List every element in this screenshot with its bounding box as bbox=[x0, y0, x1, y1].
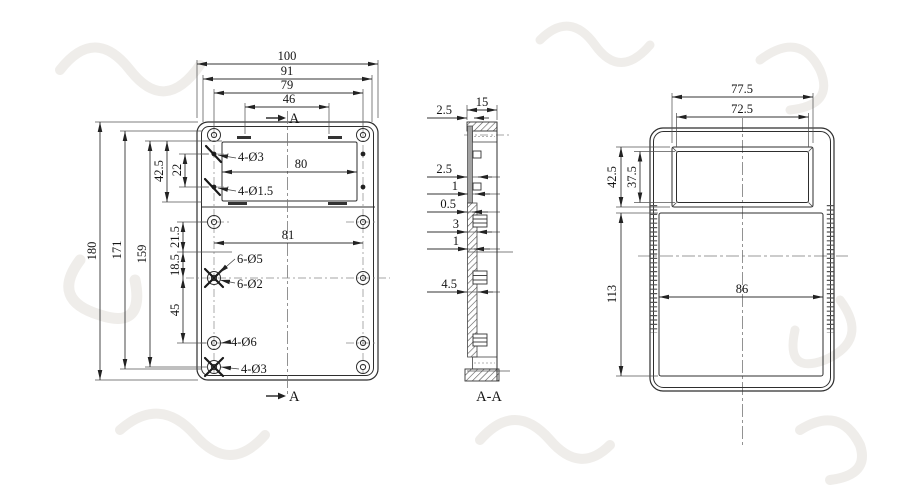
dim-86: 86 bbox=[736, 282, 749, 296]
dim-4-5: 4.5 bbox=[441, 277, 457, 291]
callout-mid-small-holes: 6-Ø2 bbox=[237, 277, 263, 291]
dim-0-5: 0.5 bbox=[440, 197, 456, 211]
section-letter-bottom: A bbox=[289, 389, 300, 405]
front-small-holes bbox=[212, 152, 366, 190]
dim-91: 91 bbox=[281, 64, 294, 78]
dim-37-5: 37.5 bbox=[625, 166, 639, 188]
dim-81: 81 bbox=[282, 228, 295, 242]
dim-2-5: 2.5 bbox=[436, 162, 452, 176]
dim-22: 22 bbox=[170, 164, 184, 177]
section-arrow-icon bbox=[278, 393, 286, 400]
section-bottom-recess bbox=[473, 357, 498, 369]
dim-3: 3 bbox=[453, 217, 459, 231]
callout-top-small-holes: 4-Ø1.5 bbox=[238, 184, 273, 198]
dim-80: 80 bbox=[295, 157, 308, 171]
dim-2-5-top: 2.5 bbox=[436, 103, 452, 117]
dim-18-5: 18.5 bbox=[168, 254, 182, 276]
dim-159: 159 bbox=[135, 245, 149, 264]
dim-1-lower: 1 bbox=[453, 234, 459, 248]
dim-21-5: 21.5 bbox=[168, 226, 182, 248]
dim-180: 180 bbox=[85, 242, 99, 261]
dim-100: 100 bbox=[278, 49, 297, 63]
callout-top-holes: 4-Ø3 bbox=[238, 150, 264, 164]
dim-42-5-side: 42.5 bbox=[605, 166, 619, 188]
dim-77-5: 77.5 bbox=[731, 82, 753, 96]
front-callouts: 4-Ø3 4-Ø1.5 6-Ø5 6-Ø2 4-Ø6 4-Ø3 bbox=[218, 150, 273, 376]
section-letter-top: A bbox=[289, 111, 300, 127]
dim-113: 113 bbox=[605, 285, 619, 303]
callout-bottom-corner-holes: 4-Ø3 bbox=[241, 362, 267, 376]
dim-46: 46 bbox=[283, 92, 296, 106]
side-outer-outline bbox=[650, 128, 834, 391]
dim-1-upper: 1 bbox=[452, 179, 458, 193]
dim-171: 171 bbox=[110, 241, 124, 260]
callout-bottom-holes: 4-Ø6 bbox=[231, 335, 257, 349]
section-wall-upper bbox=[468, 126, 473, 203]
section-arrow-icon bbox=[278, 115, 286, 122]
section-top-recess bbox=[473, 131, 498, 142]
dim-45: 45 bbox=[168, 304, 182, 317]
dim-15: 15 bbox=[476, 95, 489, 109]
section-bottom-cap bbox=[465, 369, 499, 381]
section-marker-bottom: A bbox=[266, 389, 300, 405]
engineering-drawing-page: 100 91 79 46 A bbox=[0, 0, 900, 500]
section-marker-top: A bbox=[266, 111, 300, 127]
side-view: 77.5 72.5 42.5 37.5 113 86 bbox=[605, 82, 848, 448]
dim-79: 79 bbox=[281, 78, 294, 92]
side-extensions bbox=[616, 93, 813, 376]
side-inner-outline bbox=[654, 132, 831, 388]
front-centerlines bbox=[186, 111, 390, 397]
front-view: 100 91 79 46 A bbox=[85, 49, 390, 405]
section-view: 15 2.5 2.5 1 0.5 3 1 4.5 A-A bbox=[427, 95, 513, 405]
section-label: A-A bbox=[476, 389, 502, 405]
dim-42-5: 42.5 bbox=[152, 160, 166, 182]
drawing-canvas: 100 91 79 46 A bbox=[0, 0, 900, 500]
callout-mid-holes: 6-Ø5 bbox=[237, 252, 263, 266]
dim-72-5: 72.5 bbox=[731, 102, 753, 116]
